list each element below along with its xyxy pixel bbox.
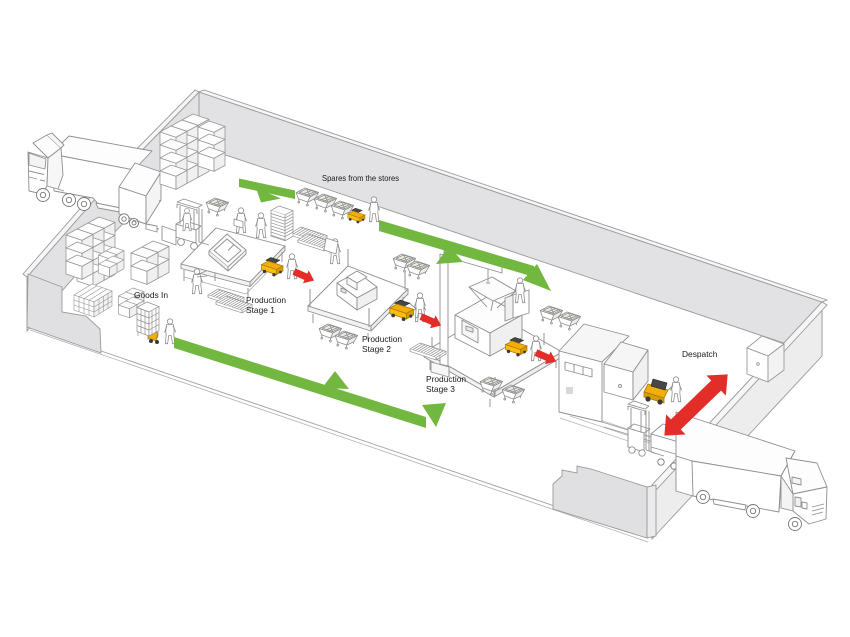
- svg-text:Stage 1: Stage 1: [246, 305, 275, 315]
- svg-text:Stage 2: Stage 2: [362, 344, 391, 354]
- svg-text:Production: Production: [246, 295, 286, 305]
- svg-text:Spares from the stores: Spares from the stores: [322, 173, 399, 183]
- svg-text:Production: Production: [362, 334, 402, 344]
- svg-text:Goods In: Goods In: [134, 290, 168, 300]
- svg-text:Stage 3: Stage 3: [426, 384, 455, 394]
- svg-text:Despatch: Despatch: [682, 349, 718, 359]
- svg-text:Production: Production: [426, 374, 466, 384]
